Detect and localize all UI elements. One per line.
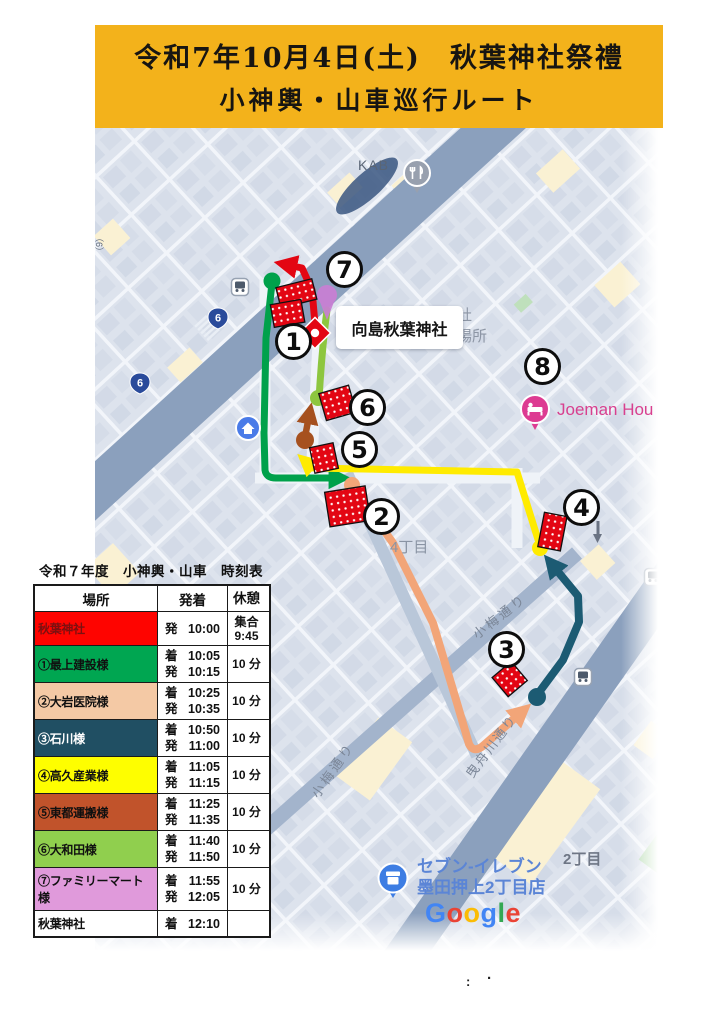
- rest-cell: 集合9:45: [227, 612, 265, 645]
- time-kind: 着: [165, 916, 178, 932]
- festival-route-flyer: 令和7年10月4日(土) 秋葉神社祭禮 小神輿・山車巡行ルート: [0, 0, 715, 1024]
- time-kind: 着: [165, 833, 178, 849]
- time-cell: 着11:05 発11:15: [157, 757, 227, 793]
- rest-line: 10 分: [232, 805, 261, 819]
- time-kind: 発: [165, 889, 178, 905]
- header-depart-arrive: 発着: [157, 586, 227, 611]
- google-letter: o: [464, 898, 481, 928]
- time-value: 10:15: [188, 664, 220, 680]
- timetable-row: ③石川様 着10:50 発11:00 10 分: [35, 719, 269, 756]
- google-letter: G: [425, 898, 447, 928]
- place-cell: 秋葉神社: [35, 612, 157, 645]
- time-value: 11:05: [189, 759, 220, 775]
- rest-cell: [227, 911, 265, 936]
- time-kind: 発: [165, 664, 178, 680]
- stop-marker-3: 3: [488, 631, 525, 668]
- timetable-row: ⑥大和田様 着11:40 発11:50 10 分: [35, 830, 269, 867]
- rest-line: 10 分: [232, 768, 261, 782]
- kab-label: KAB: [358, 157, 389, 173]
- chome4-label: 4丁目: [390, 536, 428, 557]
- header-place: 場所: [35, 586, 157, 611]
- time-kind: 着: [165, 873, 178, 889]
- rest-line: 9:45: [234, 629, 258, 643]
- time-cell: 着10:05 発10:15: [157, 646, 227, 682]
- timetable-row: ①最上建設様 着10:05 発10:15 10 分: [35, 645, 269, 682]
- time-cell: 着10:25 発10:35: [157, 683, 227, 719]
- time-value: 10:05: [188, 648, 220, 664]
- stop-marker-2: 2: [363, 498, 400, 535]
- scan-marks: : ·: [462, 970, 512, 1004]
- time-value: 11:35: [189, 812, 220, 828]
- header-rest: 休憩: [227, 586, 265, 611]
- google-letter: o: [447, 898, 464, 928]
- timetable-title: 令和７年度 小神輿・山車 時刻表: [39, 560, 273, 580]
- place-cell: 秋葉神社: [35, 911, 157, 936]
- time-kind: 発: [165, 775, 178, 791]
- time-cell: 着12:10: [157, 911, 227, 936]
- svg-text:6: 6: [215, 313, 221, 325]
- google-letter: g: [481, 898, 498, 928]
- timetable-row: ④高久産業様 着11:05 発11:15 10 分: [35, 756, 269, 793]
- chome2-label: 2丁目: [563, 848, 601, 869]
- seveneleven-line2: 墨田押上2丁目店: [417, 877, 545, 898]
- time-kind: 着: [165, 759, 178, 775]
- time-value: 11:00: [189, 738, 220, 754]
- timetable-header-row: 場所 発着 休憩: [35, 586, 269, 611]
- rest-cell: 10 分: [227, 794, 265, 830]
- time-kind: 発: [165, 621, 178, 637]
- time-cell: 発10:00: [157, 612, 227, 645]
- stop-marker-4: 4: [563, 489, 600, 526]
- seveneleven-label: セブン-イレブン 墨田押上2丁目店: [417, 856, 545, 898]
- bus-stop-icon: [232, 279, 249, 296]
- rest-line: 10 分: [232, 694, 261, 708]
- rest-cell: 10 分: [227, 868, 265, 910]
- bus-stop-icon: [575, 669, 592, 686]
- banner-line2: 小神輿・山車巡行ルート: [219, 81, 538, 117]
- joeman-house-label: Joeman Hou: [557, 400, 653, 420]
- stop-dot-3: [528, 688, 546, 706]
- time-value: 11:50: [189, 849, 220, 865]
- place-cell: ⑦ファミリーマート様: [35, 868, 157, 910]
- stop-marker-8: 8: [524, 348, 561, 385]
- time-kind: 着: [165, 722, 178, 738]
- stop-marker-7: 7: [326, 251, 363, 288]
- timetable: 令和７年度 小神輿・山車 時刻表 場所 発着 休憩 秋葉神社 発10:00 集合…: [33, 560, 273, 938]
- rest-cell: 10 分: [227, 683, 265, 719]
- stop-marker-5: 5: [341, 431, 378, 468]
- rest-line: 10 分: [232, 731, 261, 745]
- google-letter: e: [506, 898, 522, 928]
- time-value: 11:15: [189, 775, 220, 791]
- timetable-row: ②大岩医院様 着10:25 発10:35 10 分: [35, 682, 269, 719]
- scan-mark-dot: ·: [487, 970, 492, 987]
- timetable-row: 秋葉神社 着12:10: [35, 910, 269, 936]
- stop-marker-6: 6: [349, 389, 386, 426]
- time-kind: 着: [165, 648, 178, 664]
- time-value: 10:35: [188, 701, 220, 717]
- time-value: 10:00: [188, 621, 220, 637]
- time-value: 10:50: [188, 722, 220, 738]
- seveneleven-line1: セブン-イレブン: [417, 856, 545, 877]
- rest-cell: 10 分: [227, 720, 265, 756]
- place-cell: ⑤東都運搬様: [35, 794, 157, 830]
- time-kind: 発: [165, 738, 178, 754]
- time-cell: 着10:50 発11:00: [157, 720, 227, 756]
- time-kind: 発: [165, 701, 178, 717]
- time-kind: 発: [165, 812, 178, 828]
- timetable-table: 場所 発着 休憩 秋葉神社 発10:00 集合9:45 ①最上建設様 着10:0…: [33, 584, 271, 938]
- rest-line: 集合: [234, 615, 258, 629]
- time-cell: 着11:55 発12:05: [157, 868, 227, 910]
- time-cell: 着11:40 発11:50: [157, 831, 227, 867]
- time-value: 10:25: [188, 685, 220, 701]
- banner-line1: 令和7年10月4日(土) 秋葉神社祭禮: [134, 36, 624, 75]
- svg-text:6: 6: [137, 378, 143, 390]
- place-cell: ⑥大和田様: [35, 831, 157, 867]
- time-value: 11:40: [189, 833, 220, 849]
- time-kind: 発: [165, 849, 178, 865]
- time-value: 11:25: [189, 796, 220, 812]
- timetable-row: ⑤東都運搬様 着11:25 発11:35 10 分: [35, 793, 269, 830]
- time-value: 12:10: [188, 916, 220, 932]
- time-value: 12:05: [188, 889, 220, 905]
- time-value: 11:55: [189, 873, 220, 889]
- house-pin-icon: [236, 416, 260, 440]
- stop-dot-5: [296, 431, 314, 449]
- google-logo: Google: [425, 898, 521, 929]
- scan-mark-colon: :: [466, 974, 470, 989]
- rest-cell: 10 分: [227, 831, 265, 867]
- place-cell: ③石川様: [35, 720, 157, 756]
- title-banner: 令和7年10月4日(土) 秋葉神社祭禮 小神輿・山車巡行ルート: [95, 25, 663, 128]
- map-edge-fragment: （6）: [95, 233, 106, 256]
- rest-cell: 10 分: [227, 646, 265, 682]
- place-cell: ④高久産業様: [35, 757, 157, 793]
- rest-line: 10 分: [232, 882, 261, 896]
- place-cell: ①最上建設様: [35, 646, 157, 682]
- google-letter: l: [498, 898, 506, 928]
- timetable-row: ⑦ファミリーマート様 着11:55 発12:05 10 分: [35, 867, 269, 910]
- time-kind: 着: [165, 796, 178, 812]
- shrine-name-box: 向島秋葉神社: [336, 306, 463, 349]
- timetable-row: 秋葉神社 発10:00 集合9:45: [35, 611, 269, 645]
- place-cell: ②大岩医院様: [35, 683, 157, 719]
- rest-line: 10 分: [232, 842, 261, 856]
- time-kind: 着: [165, 685, 178, 701]
- time-cell: 着11:25 発11:35: [157, 794, 227, 830]
- stop-marker-1: 1: [275, 323, 312, 360]
- rest-cell: 10 分: [227, 757, 265, 793]
- map-right-fade: [621, 128, 663, 955]
- rest-line: 10 分: [232, 657, 261, 671]
